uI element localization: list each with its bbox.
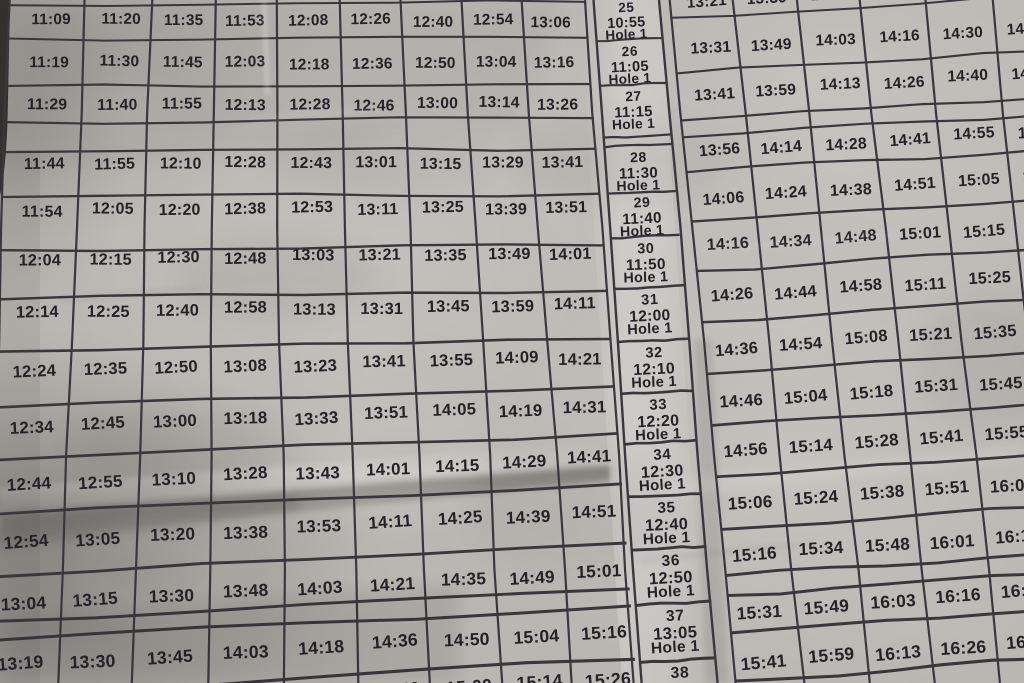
svg-text:26: 26 <box>621 44 638 60</box>
svg-text:11:55: 11:55 <box>94 156 135 174</box>
svg-text:14:16: 14:16 <box>879 27 920 46</box>
svg-text:12:20: 12:20 <box>159 202 201 219</box>
svg-text:13:18: 13:18 <box>223 408 267 428</box>
svg-text:15:45: 15:45 <box>979 373 1024 395</box>
svg-text:13:38: 13:38 <box>223 522 269 544</box>
svg-text:14:51: 14:51 <box>894 175 937 195</box>
svg-text:Hole 1: Hole 1 <box>620 221 665 239</box>
svg-text:14:21: 14:21 <box>558 349 602 369</box>
svg-text:32: 32 <box>645 345 663 362</box>
svg-text:13:56: 13:56 <box>698 140 741 160</box>
svg-text:13:20: 13:20 <box>150 523 196 544</box>
svg-text:13:00: 13:00 <box>153 411 198 432</box>
svg-text:Hole 1: Hole 1 <box>608 70 651 87</box>
svg-text:15:34: 15:34 <box>798 537 844 559</box>
svg-text:14:31: 14:31 <box>562 397 606 417</box>
svg-text:15:28: 15:28 <box>854 430 900 453</box>
svg-text:Hole 1: Hole 1 <box>612 116 656 133</box>
svg-text:12:54: 12:54 <box>473 11 514 29</box>
svg-text:14:28: 14:28 <box>825 135 867 154</box>
svg-text:15:48: 15:48 <box>864 533 910 555</box>
svg-text:13:21: 13:21 <box>358 246 401 265</box>
svg-text:13:06: 13:06 <box>530 14 570 31</box>
svg-text:12:40: 12:40 <box>413 14 453 31</box>
svg-text:12:15: 12:15 <box>89 251 132 269</box>
svg-text:12:03: 12:03 <box>225 53 266 71</box>
svg-text:15:18: 15:18 <box>849 381 894 404</box>
svg-text:15:25: 15:25 <box>968 268 1012 288</box>
svg-text:14:44: 14:44 <box>773 282 817 304</box>
svg-text:33: 33 <box>649 397 667 414</box>
svg-text:15:11: 15:11 <box>904 275 947 296</box>
svg-text:Hole 1: Hole 1 <box>623 269 668 286</box>
svg-text:12:04: 12:04 <box>19 251 62 269</box>
svg-text:13:08: 13:08 <box>223 356 267 377</box>
svg-text:16:15: 16:15 <box>994 524 1024 547</box>
svg-text:14:54: 14:54 <box>779 334 824 355</box>
svg-text:15:05: 15:05 <box>958 171 1001 191</box>
svg-text:14:38: 14:38 <box>830 181 873 200</box>
svg-text:12:18: 12:18 <box>289 56 330 73</box>
svg-text:13:16: 13:16 <box>534 54 575 72</box>
svg-text:16:30: 16:30 <box>1000 578 1024 602</box>
svg-text:14:26: 14:26 <box>710 284 754 305</box>
svg-text:Hole 1: Hole 1 <box>631 374 677 392</box>
svg-text:12:36: 12:36 <box>352 55 393 73</box>
svg-text:14:01: 14:01 <box>366 459 411 479</box>
svg-text:13:31: 13:31 <box>360 300 403 318</box>
svg-text:13:13: 13:13 <box>293 301 336 319</box>
svg-text:15:31: 15:31 <box>736 601 783 624</box>
svg-text:25: 25 <box>618 0 635 15</box>
svg-text:14:14: 14:14 <box>760 138 803 158</box>
svg-text:14:01: 14:01 <box>549 245 592 264</box>
svg-text:14:55: 14:55 <box>953 124 995 143</box>
svg-text:11:45: 11:45 <box>163 54 203 72</box>
svg-text:14:03: 14:03 <box>815 31 856 50</box>
svg-text:12:34: 12:34 <box>9 417 54 438</box>
svg-text:14:15: 14:15 <box>435 456 480 476</box>
svg-text:16:01: 16:01 <box>929 530 975 553</box>
svg-text:14:06: 14:06 <box>702 189 745 209</box>
svg-text:13:25: 13:25 <box>422 199 464 217</box>
svg-text:16:05: 16:05 <box>989 475 1024 497</box>
svg-text:13:55: 13:55 <box>429 350 473 371</box>
svg-text:13:03: 13:03 <box>292 246 335 265</box>
svg-text:13:59: 13:59 <box>755 81 797 100</box>
svg-text:12:10: 12:10 <box>160 155 202 172</box>
svg-text:14:39: 14:39 <box>505 507 551 528</box>
svg-text:15:24: 15:24 <box>793 487 839 509</box>
svg-text:16:13: 16:13 <box>874 641 922 665</box>
svg-text:15:15: 15:15 <box>962 221 1006 242</box>
svg-text:11:54: 11:54 <box>22 204 63 221</box>
svg-text:14:41: 14:41 <box>889 130 932 150</box>
svg-text:16:03: 16:03 <box>870 590 917 613</box>
svg-text:12:43: 12:43 <box>290 155 332 172</box>
svg-text:35: 35 <box>657 499 676 517</box>
svg-text:13:59: 13:59 <box>491 297 534 316</box>
svg-text:12:44: 12:44 <box>6 473 52 495</box>
svg-text:15:08: 15:08 <box>844 327 889 349</box>
svg-text:15:41: 15:41 <box>740 650 788 674</box>
svg-text:13:04: 13:04 <box>0 592 46 614</box>
svg-text:13:49: 13:49 <box>751 36 793 55</box>
svg-text:12:08: 12:08 <box>288 12 329 30</box>
svg-text:15:01: 15:01 <box>899 223 942 243</box>
svg-text:31: 31 <box>641 292 659 309</box>
svg-text:14:05: 14:05 <box>432 399 476 420</box>
svg-text:14:19: 14:19 <box>498 401 542 422</box>
svg-text:14:56: 14:56 <box>723 439 769 461</box>
svg-text:14:24: 14:24 <box>764 183 807 203</box>
svg-text:15:14: 15:14 <box>516 670 564 683</box>
svg-text:14:46: 14:46 <box>719 390 764 412</box>
svg-text:15:26: 15:26 <box>584 668 632 683</box>
svg-text:16:26: 16:26 <box>940 636 987 658</box>
svg-text:12:50: 12:50 <box>415 55 456 72</box>
svg-text:13:04: 13:04 <box>476 54 517 71</box>
svg-text:Hole 1: Hole 1 <box>605 26 648 43</box>
svg-text:15:04: 15:04 <box>783 385 829 408</box>
svg-text:14:25: 14:25 <box>437 507 483 529</box>
svg-text:15:55: 15:55 <box>984 422 1024 444</box>
svg-text:12:54: 12:54 <box>3 530 50 553</box>
svg-text:12:05: 12:05 <box>92 200 134 217</box>
svg-text:11:40: 11:40 <box>97 97 138 114</box>
svg-text:13:05: 13:05 <box>75 528 121 551</box>
svg-text:14:49: 14:49 <box>509 566 555 589</box>
svg-text:14:11: 14:11 <box>554 294 597 313</box>
svg-text:12:13: 12:13 <box>225 97 266 114</box>
svg-text:11:44: 11:44 <box>24 155 65 173</box>
svg-text:12:25: 12:25 <box>87 303 130 321</box>
svg-text:13:35: 13:35 <box>424 246 467 265</box>
svg-text:14:36: 14:36 <box>714 339 759 360</box>
svg-text:13:53: 13:53 <box>296 516 341 536</box>
svg-text:12:45: 12:45 <box>80 412 125 433</box>
svg-text:13:31: 13:31 <box>690 39 732 58</box>
svg-text:13:01: 13:01 <box>355 154 397 171</box>
svg-text:15:01: 15:01 <box>576 560 622 582</box>
svg-text:13:30: 13:30 <box>148 585 194 607</box>
svg-text:14:29: 14:29 <box>502 451 547 473</box>
svg-text:13:00: 13:00 <box>417 95 458 112</box>
svg-text:16:16: 16:16 <box>935 584 982 607</box>
svg-text:16:40: 16:40 <box>1005 629 1024 653</box>
svg-text:13:49: 13:49 <box>488 245 530 263</box>
svg-text:13:28: 13:28 <box>223 463 268 484</box>
svg-text:11:55: 11:55 <box>162 96 202 113</box>
svg-text:11:20: 11:20 <box>101 11 141 28</box>
svg-text:14:42: 14:42 <box>1006 19 1024 39</box>
svg-text:14:26: 14:26 <box>883 74 925 93</box>
svg-text:13:23: 13:23 <box>293 356 337 377</box>
svg-text:15:16: 15:16 <box>581 621 628 644</box>
svg-text:28: 28 <box>630 149 647 166</box>
svg-text:14:52: 14:52 <box>1011 63 1024 83</box>
svg-text:12:50: 12:50 <box>154 357 198 378</box>
svg-text:30: 30 <box>637 241 655 258</box>
svg-text:14:41: 14:41 <box>567 446 612 467</box>
svg-text:12:28: 12:28 <box>224 154 266 172</box>
svg-text:15:59: 15:59 <box>808 643 856 667</box>
svg-text:12:40: 12:40 <box>156 301 199 319</box>
svg-text:14:11: 14:11 <box>368 511 413 533</box>
svg-text:12:38: 12:38 <box>224 200 266 218</box>
svg-text:11:35: 11:35 <box>164 12 204 29</box>
svg-text:12:26: 12:26 <box>350 11 391 29</box>
svg-text:15:06: 15:06 <box>727 492 773 514</box>
svg-text:13:48: 13:48 <box>223 580 269 602</box>
svg-text:13:14: 13:14 <box>478 94 520 112</box>
svg-text:12:53: 12:53 <box>291 199 333 217</box>
svg-text:12:48: 12:48 <box>224 249 267 268</box>
svg-text:15:38: 15:38 <box>859 481 905 503</box>
svg-text:Hole 1: Hole 1 <box>650 638 700 658</box>
svg-text:14:30: 14:30 <box>942 24 983 43</box>
svg-text:13:41: 13:41 <box>694 85 736 105</box>
svg-text:11:53: 11:53 <box>225 12 265 30</box>
svg-text:15:07: 15:07 <box>1017 124 1024 143</box>
svg-text:Hole 1: Hole 1 <box>638 475 686 495</box>
svg-text:13:43: 13:43 <box>295 463 340 483</box>
svg-text:13:15: 13:15 <box>420 156 462 173</box>
svg-text:15:51: 15:51 <box>924 477 970 499</box>
svg-text:14:13: 14:13 <box>819 75 861 94</box>
svg-text:13:29: 13:29 <box>482 154 524 171</box>
svg-text:15:04: 15:04 <box>513 625 560 648</box>
svg-text:15:31: 15:31 <box>914 375 959 397</box>
svg-text:12:30: 12:30 <box>157 248 200 267</box>
svg-text:13:15: 13:15 <box>72 588 119 611</box>
svg-text:13:41: 13:41 <box>362 351 406 371</box>
svg-text:Hole 1: Hole 1 <box>646 582 695 602</box>
svg-text:15:14: 15:14 <box>788 435 834 457</box>
svg-text:13:51: 13:51 <box>545 199 587 217</box>
svg-text:12:35: 12:35 <box>83 358 127 379</box>
svg-text:38: 38 <box>670 664 689 682</box>
svg-text:15:41: 15:41 <box>919 426 964 449</box>
svg-text:Hole 1: Hole 1 <box>635 426 682 444</box>
svg-text:14:58: 14:58 <box>839 275 883 296</box>
svg-text:11:30: 11:30 <box>99 52 139 70</box>
svg-text:15:49: 15:49 <box>803 595 850 618</box>
svg-text:13:33: 13:33 <box>294 408 339 430</box>
svg-text:27: 27 <box>625 89 642 105</box>
svg-text:11:29: 11:29 <box>27 96 67 113</box>
svg-text:13:39: 13:39 <box>485 201 527 218</box>
svg-text:Hole 1: Hole 1 <box>616 176 660 193</box>
svg-text:11:19: 11:19 <box>29 54 69 71</box>
svg-text:13:51: 13:51 <box>364 402 409 423</box>
svg-text:13:41: 13:41 <box>541 154 583 172</box>
svg-text:13:26: 13:26 <box>537 96 578 113</box>
svg-text:12:55: 12:55 <box>78 472 124 494</box>
svg-text:15:35: 15:35 <box>973 322 1018 344</box>
svg-text:13:10: 13:10 <box>151 469 196 490</box>
svg-text:29: 29 <box>633 194 651 211</box>
svg-text:Hole 1: Hole 1 <box>643 529 691 548</box>
svg-text:12:24: 12:24 <box>12 361 57 382</box>
svg-text:14:51: 14:51 <box>571 502 617 523</box>
svg-text:15:21: 15:21 <box>909 325 953 345</box>
svg-text:12:14: 12:14 <box>16 303 60 322</box>
svg-text:14:40: 14:40 <box>947 67 989 86</box>
svg-text:14:09: 14:09 <box>495 347 539 367</box>
svg-text:11:09: 11:09 <box>31 11 71 28</box>
svg-text:Hole 1: Hole 1 <box>627 320 673 338</box>
svg-text:13:45: 13:45 <box>427 297 470 316</box>
svg-text:12:58: 12:58 <box>224 299 267 317</box>
svg-text:13:11: 13:11 <box>357 201 398 219</box>
